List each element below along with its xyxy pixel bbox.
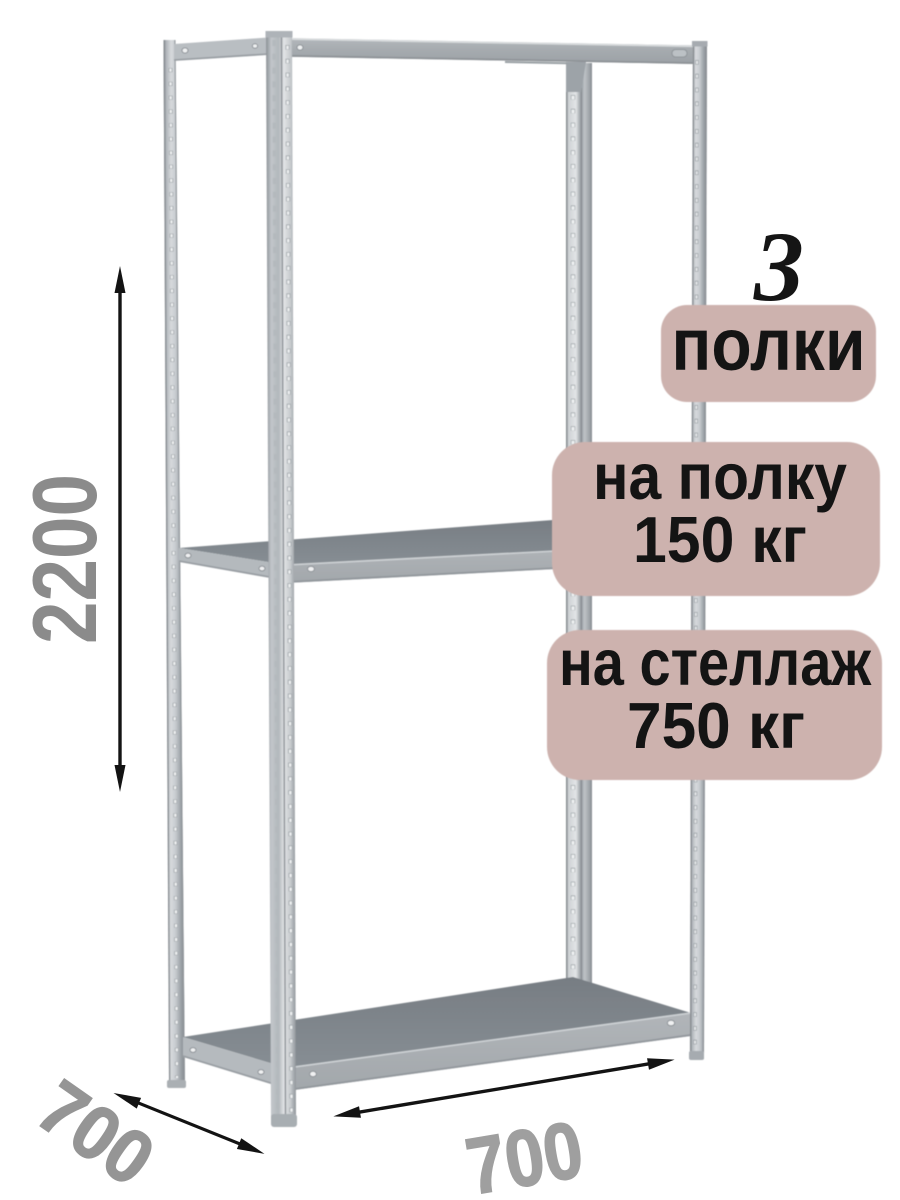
svg-text:750 кг: 750 кг xyxy=(627,689,805,762)
svg-text:150 кг: 150 кг xyxy=(633,503,807,576)
svg-text:2200: 2200 xyxy=(15,474,116,644)
svg-text:полки: полки xyxy=(672,303,866,386)
